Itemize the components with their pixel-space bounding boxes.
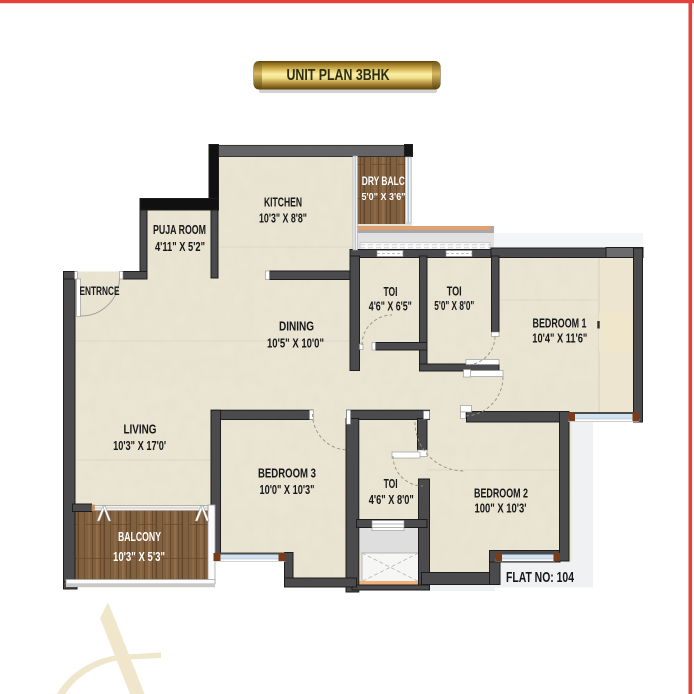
svg-text:5'0" X 8'0": 5'0" X 8'0" — [434, 299, 474, 313]
svg-text:4'11" X 5'2": 4'11" X 5'2" — [155, 240, 205, 254]
svg-text:4'6" X 6'5": 4'6" X 6'5" — [369, 299, 412, 313]
svg-text:10'3" X 5'3": 10'3" X 5'3" — [113, 549, 165, 564]
svg-text:KITCHEN: KITCHEN — [264, 196, 302, 210]
svg-text:10'3" X 17'0': 10'3" X 17'0' — [113, 439, 166, 453]
svg-text:4'6" X 8'0": 4'6" X 8'0" — [369, 493, 414, 507]
svg-text:TOI: TOI — [447, 285, 462, 299]
svg-text:PUJA ROOM: PUJA ROOM — [153, 223, 206, 237]
svg-text:DINING: DINING — [279, 320, 314, 334]
svg-text:UNIT PLAN 3BHK: UNIT PLAN 3BHK — [287, 67, 391, 84]
svg-text:TOI: TOI — [384, 477, 398, 491]
svg-text:DRY BALC: DRY BALC — [362, 176, 405, 188]
svg-text:LIVING: LIVING — [124, 423, 157, 437]
svg-text:10'4" X 11'6": 10'4" X 11'6" — [532, 332, 587, 346]
svg-text:FLAT NO: 104: FLAT NO: 104 — [506, 569, 574, 586]
svg-text:TOI: TOI — [384, 285, 398, 299]
svg-text:10'5" X 10'0": 10'5" X 10'0" — [267, 337, 324, 351]
svg-text:BEDROOM 2: BEDROOM 2 — [474, 487, 528, 501]
svg-text:BEDROOM 3: BEDROOM 3 — [258, 467, 316, 481]
svg-text:10'3" X 8'8": 10'3" X 8'8" — [259, 212, 307, 226]
svg-text:100" X 10'3': 100" X 10'3' — [475, 502, 527, 516]
svg-text:5'0" X 3'6": 5'0" X 3'6" — [362, 192, 406, 203]
svg-text:BALCONY: BALCONY — [118, 529, 161, 544]
svg-text:ENTRNCE: ENTRNCE — [80, 286, 120, 298]
svg-text:BEDROOM 1: BEDROOM 1 — [533, 317, 587, 331]
svg-text:10'0" X 10'3": 10'0" X 10'3" — [260, 483, 315, 497]
